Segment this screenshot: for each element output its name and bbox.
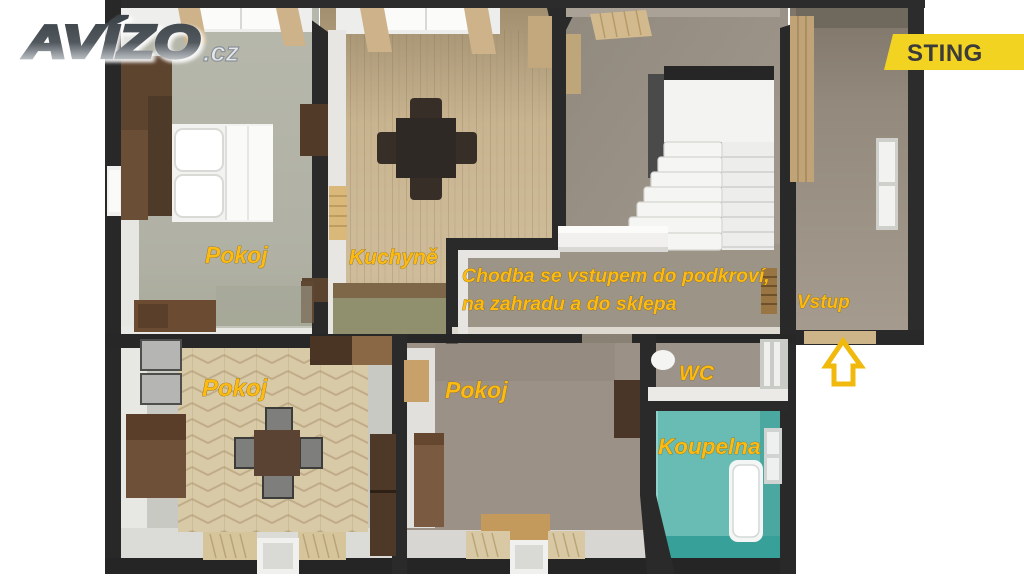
svg-text:Vstup: Vstup <box>797 292 850 313</box>
svg-text:Kuchyně: Kuchyně <box>349 246 438 269</box>
svg-text:na zahradu a do sklepa: na zahradu a do sklepa <box>462 293 677 315</box>
svg-text:Pokoj: Pokoj <box>445 377 508 403</box>
svg-text:Pokoj: Pokoj <box>202 375 269 402</box>
svg-text:Koupelna: Koupelna <box>658 434 761 459</box>
svg-text:.cz: .cz <box>203 37 240 67</box>
svg-text:AVÍZO: AVÍZO <box>22 15 200 68</box>
svg-text:Pokoj: Pokoj <box>205 242 268 268</box>
svg-text:STING: STING <box>907 40 983 67</box>
svg-text:Chodba se vstupem do podkroví,: Chodba se vstupem do podkroví, <box>462 265 770 287</box>
svg-text:WC: WC <box>679 362 715 385</box>
